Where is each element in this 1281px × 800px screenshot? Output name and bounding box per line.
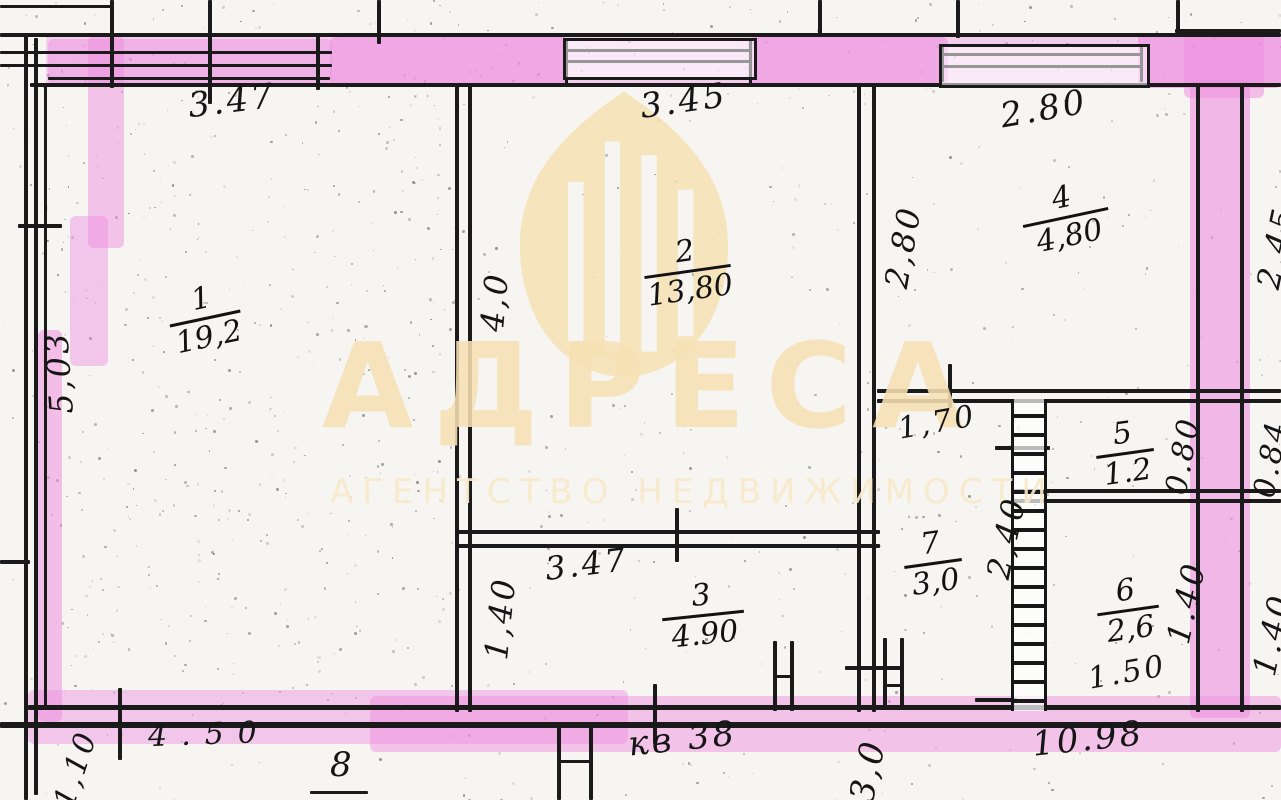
dimension-room3-height: 1,40 [480, 575, 521, 661]
apartment-number-note: кв 38 [627, 716, 739, 761]
room-label-1: 1 19,2 [159, 275, 252, 360]
dimension-bottom-left-vertical: 1,10 [50, 727, 103, 800]
dimension-bottom-partial: 3,0 [845, 736, 891, 800]
dimension-room6-width: 1.50 [1086, 651, 1169, 694]
room-label-7: 7 3,0 [895, 524, 970, 603]
floor-plan-sheet: АДРЕСА АГЕНТСТВО НЕДВИЖИМОСТИ 1 19,2 2 1… [0, 0, 1281, 800]
dimension-room1-height: 5,03 [40, 330, 78, 415]
annotation-layer: 1 19,2 2 13,80 3 4.90 4 4,80 5 1.2 6 2,6 [0, 0, 1281, 800]
room-area: 3,0 [901, 562, 971, 602]
dimension-bottom-right: 10.98 [1031, 716, 1146, 762]
room-area: 19,2 [167, 313, 252, 360]
dimension-room2-width: 3.45 [638, 78, 730, 124]
dimension-right-bottom: 1.40 [1248, 591, 1281, 679]
room-area: 2,6 [1094, 609, 1168, 650]
dimension-right-mid: 0.84 [1250, 417, 1281, 500]
dimension-room4-height: 2,80 [880, 203, 926, 291]
room-label-6: 6 2,6 [1088, 570, 1167, 649]
room-label-3: 3 4.90 [655, 575, 752, 654]
dimension-room3-width: 3.47 [543, 543, 630, 585]
dimension-room5-height: 0.80 [1162, 414, 1205, 497]
dimension-bottom-left: 4.50 [148, 718, 272, 752]
room-label-4: 4 4,80 [1012, 173, 1119, 261]
dimension-corridor-width: 1,70 [896, 401, 979, 444]
dimension-room4-width: 2.80 [998, 85, 1090, 134]
room-area: 4.90 [659, 614, 752, 655]
dimension-room2-height: 4,0 [476, 270, 513, 332]
dimension-right-top: 2.45 [1252, 204, 1281, 292]
room-label-2: 2 13,80 [636, 230, 740, 313]
dimension-room7-height: 2,40 [982, 494, 1031, 582]
dimension-room1-width: 3.47 [186, 79, 277, 123]
house-number-note: 8 [330, 748, 355, 782]
dimension-room6-height: 1.40 [1162, 559, 1211, 647]
room-area: 1.2 [1093, 452, 1163, 492]
room-label-5: 5 1.2 [1087, 414, 1162, 493]
